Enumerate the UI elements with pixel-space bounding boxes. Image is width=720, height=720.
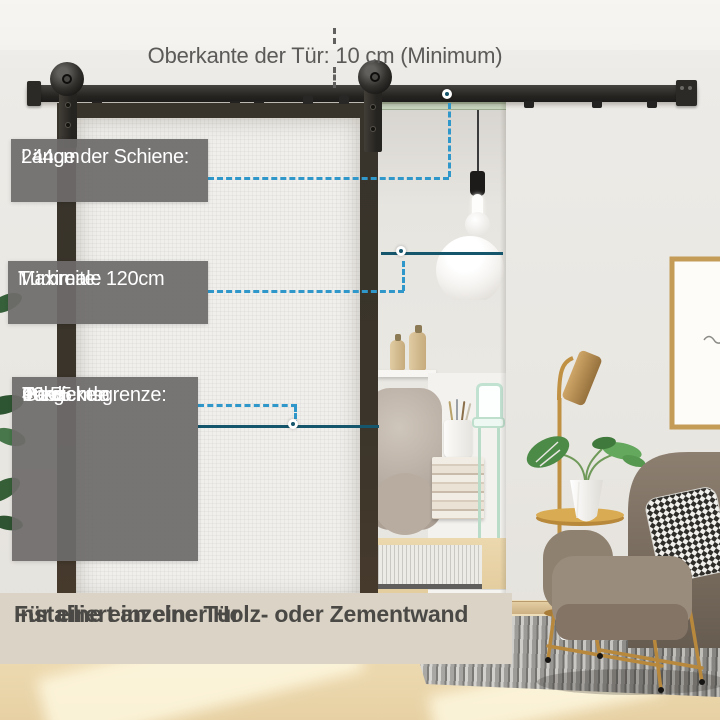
pendant-socket	[470, 171, 485, 196]
bottle-cap	[395, 334, 401, 341]
leader-dashed-rail-length	[208, 177, 449, 180]
measure-dot-rail	[442, 89, 452, 99]
leader-dashed-door-width	[402, 261, 405, 291]
pendant-sphere	[465, 212, 490, 237]
roller-wheel-left	[50, 62, 84, 96]
bottle-cap	[415, 325, 422, 333]
glass-transom-shelf	[378, 102, 506, 110]
rail-end-stop-left	[27, 81, 41, 106]
rail-spacer	[592, 101, 602, 108]
pendant-cord	[477, 110, 479, 173]
chair-shadow	[537, 669, 720, 695]
label-box-weight-thickness: Gewichtsgrenze: 90kg Passende Türdicke: …	[12, 377, 198, 561]
rail-spacer	[647, 101, 657, 108]
gap-indicator-dash	[333, 67, 336, 88]
caption-line2: Installiert an einer Holz- oder Zementwa…	[14, 600, 468, 629]
door-stop	[303, 95, 313, 104]
measure-dot-weight	[288, 419, 298, 429]
leader-dashed-weight	[198, 404, 297, 407]
leader-dashed-door-width	[208, 290, 404, 293]
product-infographic: Oberkante der Tür: 10 cm (Minimum) Länge…	[0, 0, 720, 720]
chair-skirt	[556, 604, 688, 640]
label-rail-length-line2: 244cm	[21, 145, 80, 170]
top-note: Oberkante der Tür: 10 cm (Minimum)	[120, 43, 530, 69]
label-box-door-width: Maximale Türbreite: 120cm	[8, 261, 208, 324]
rail-spacer	[524, 101, 534, 108]
armchair	[537, 452, 720, 695]
gap-indicator-dash	[333, 28, 336, 44]
decor-bottle	[409, 332, 426, 370]
caption-band: Für eine einzelne Tür Installiert an ein…	[0, 593, 512, 664]
label-thickness-line3: 40-55 mm	[22, 383, 110, 408]
decor-bottle	[390, 340, 405, 370]
rail-end-stop-right	[676, 80, 697, 106]
measure-dot-door-width	[396, 246, 406, 256]
picture-frame	[672, 259, 720, 427]
lamp-head	[561, 349, 603, 406]
leader-dashed-rail-length	[448, 103, 451, 177]
label-door-width-line2: Türbreite: 120cm	[18, 267, 164, 292]
label-box-rail-length: Länge der Schiene: 244cm	[11, 139, 208, 202]
door-stop	[339, 95, 349, 104]
